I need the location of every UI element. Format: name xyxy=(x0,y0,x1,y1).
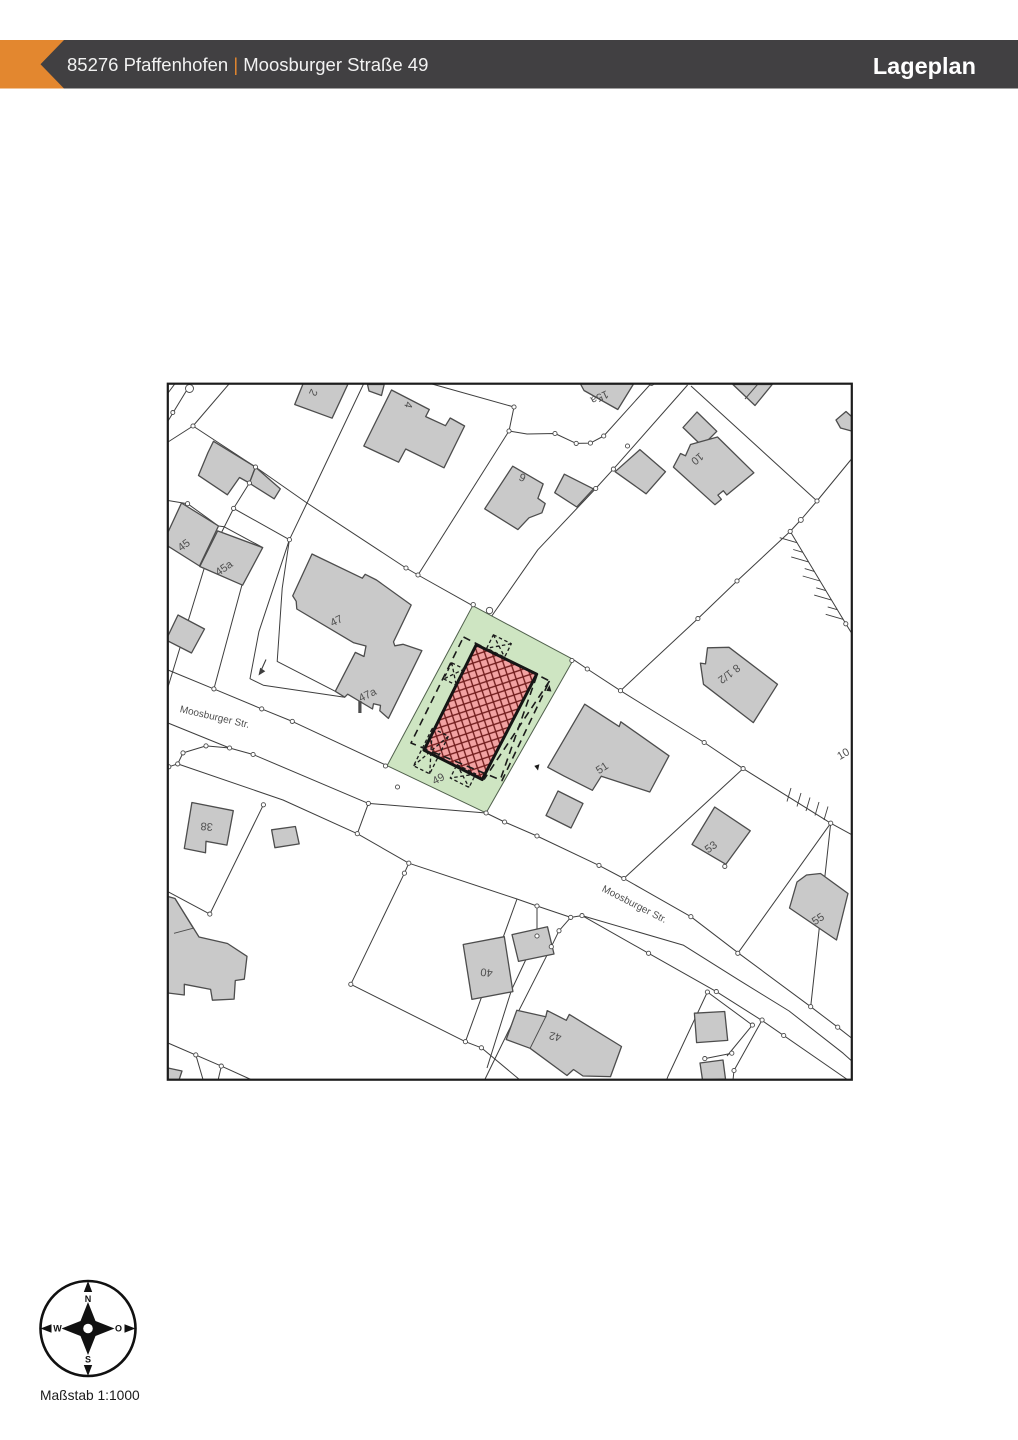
svg-text:O: O xyxy=(115,1324,122,1334)
svg-text:42: 42 xyxy=(548,1029,562,1043)
svg-text:S: S xyxy=(85,1355,91,1365)
svg-text:40: 40 xyxy=(480,965,494,978)
svg-text:W: W xyxy=(53,1324,62,1334)
svg-text:38: 38 xyxy=(200,819,213,832)
svg-text:85276 Pfaffenhofen | Moosburge: 85276 Pfaffenhofen | Moosburger Straße 4… xyxy=(67,54,428,75)
svg-text:Lageplan: Lageplan xyxy=(873,53,976,79)
svg-text:N: N xyxy=(85,1294,92,1304)
svg-text:Maßstab 1:1000: Maßstab 1:1000 xyxy=(40,1388,140,1403)
